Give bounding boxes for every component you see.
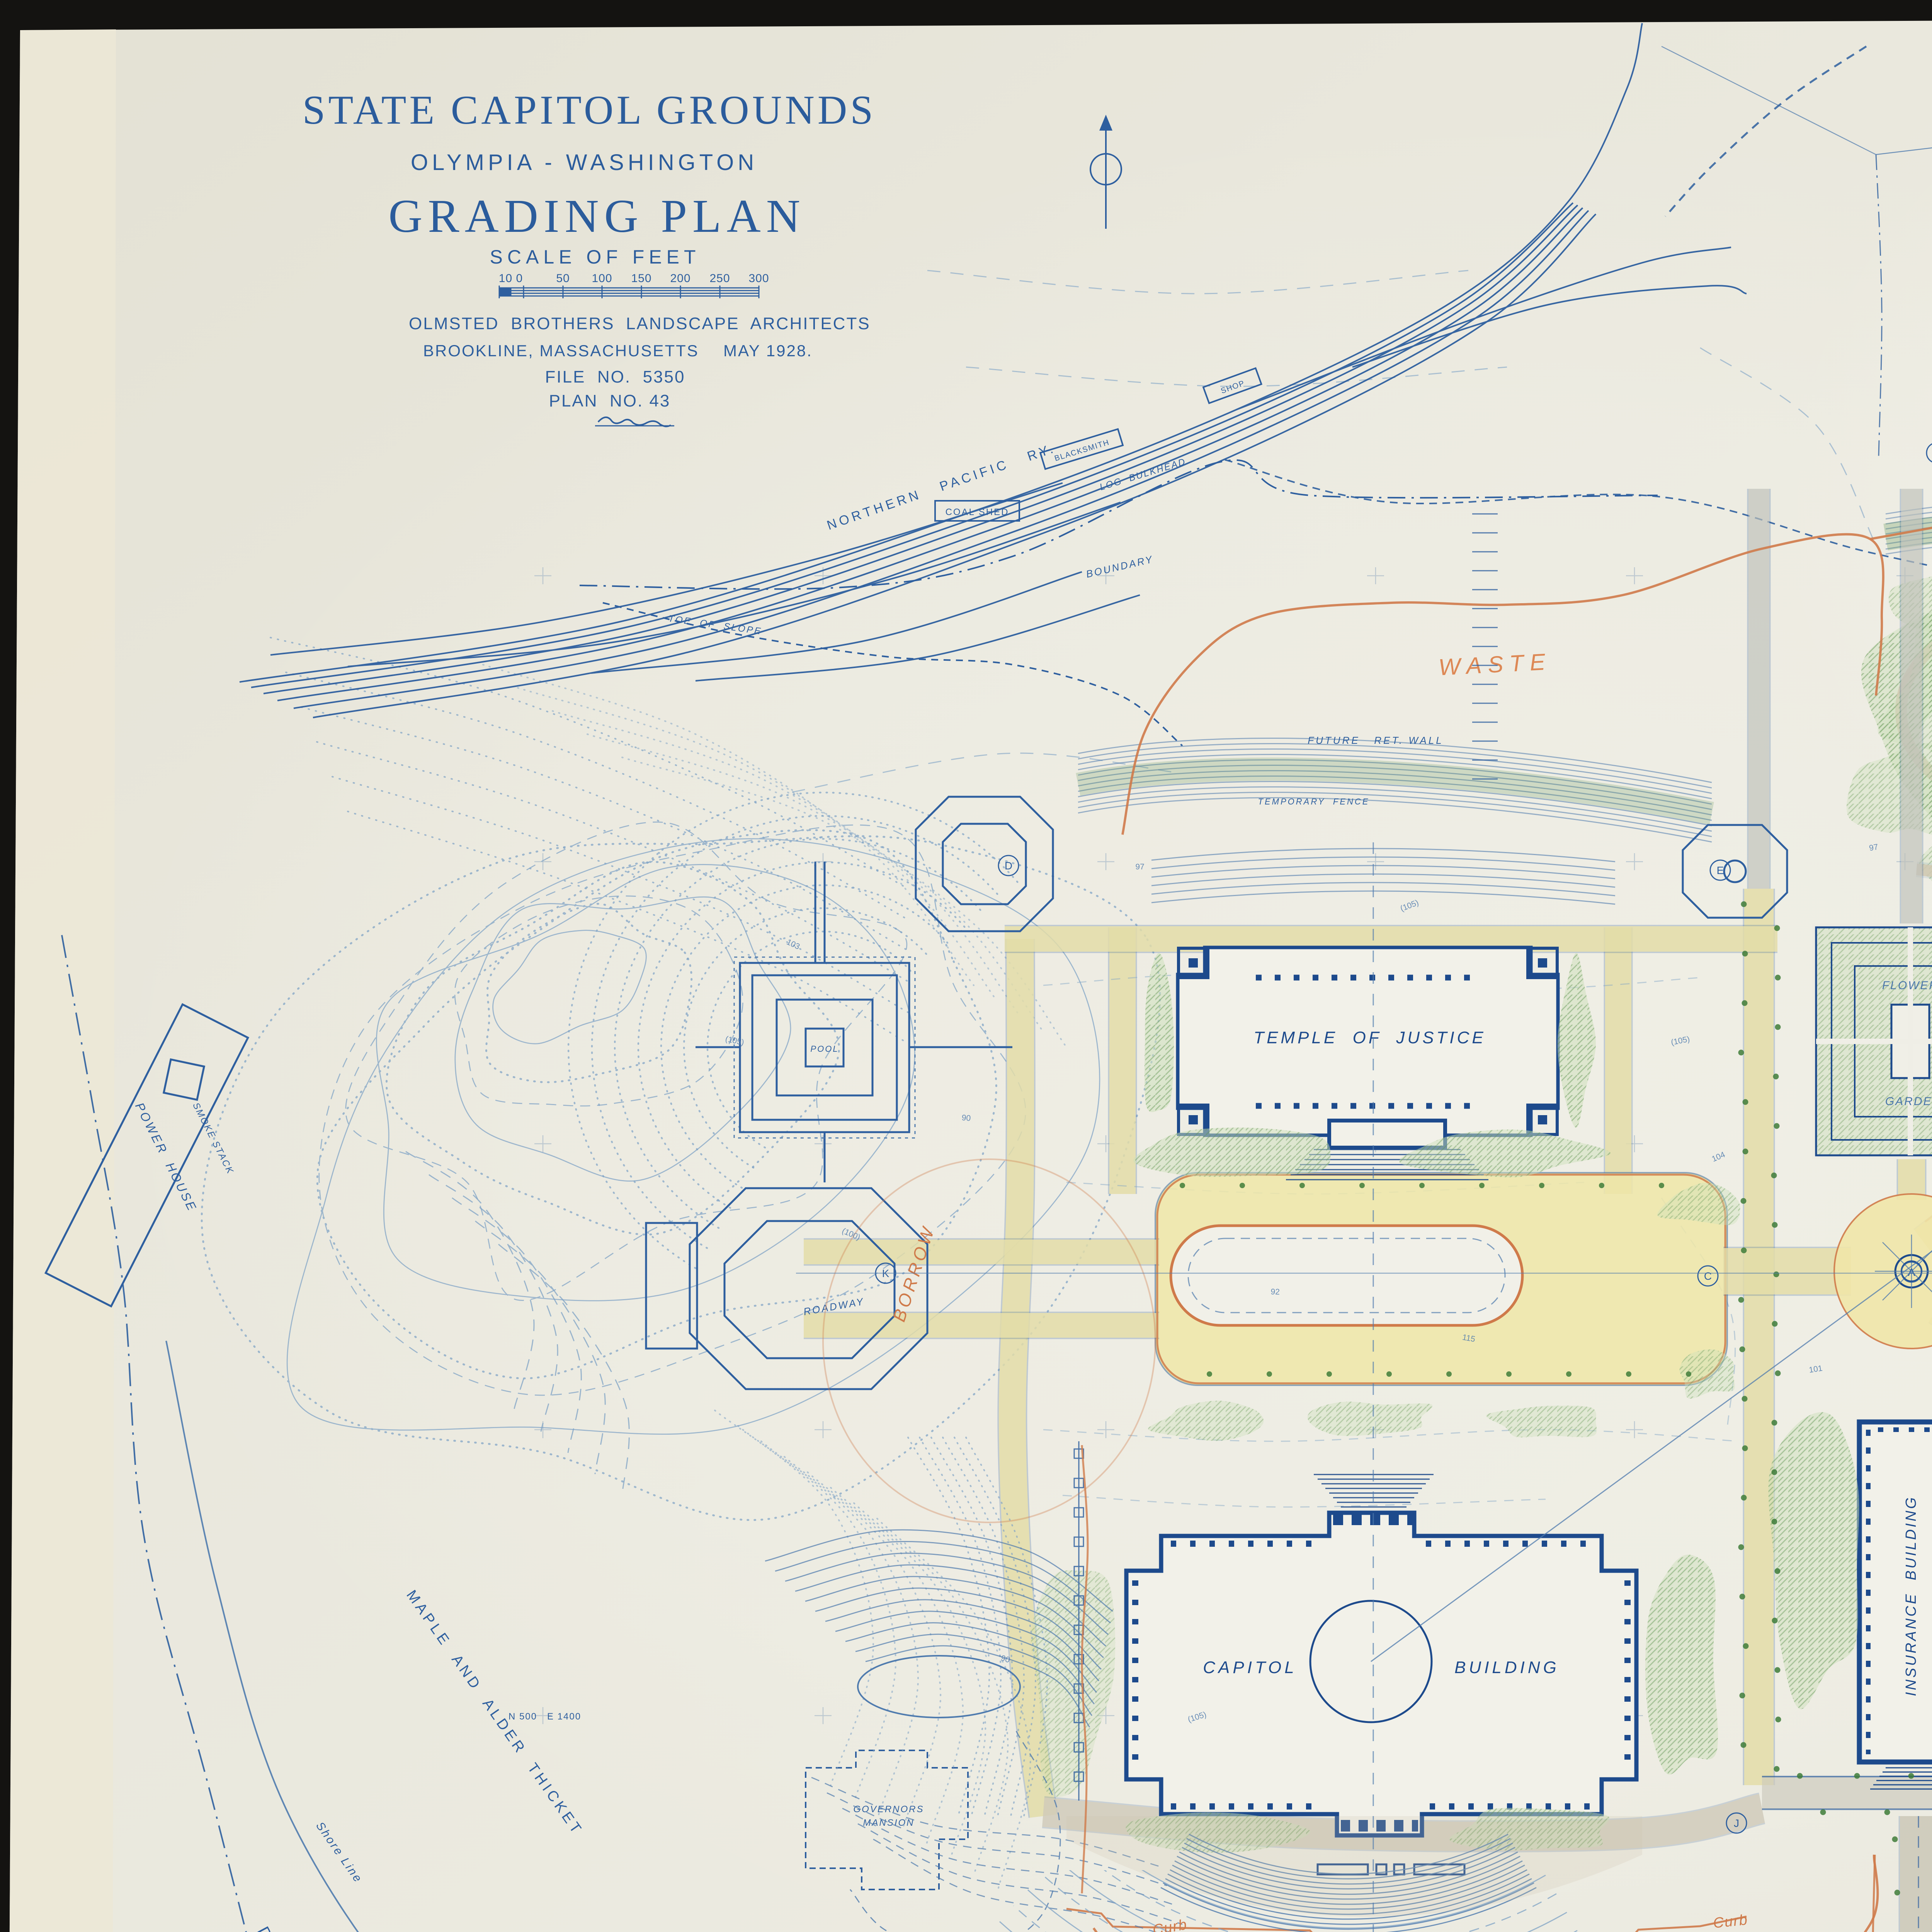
svg-text:SCALE OF FEET: SCALE OF FEET bbox=[490, 246, 701, 268]
svg-text:BUILDING: BUILDING bbox=[1454, 1658, 1560, 1677]
svg-text:97: 97 bbox=[1135, 862, 1144, 871]
svg-text:N 500 E 1400: N 500 E 1400 bbox=[509, 1711, 581, 1722]
svg-text:OLMSTED BROTHERS: OLMSTED BROTHERS bbox=[409, 314, 615, 333]
svg-text:E: E bbox=[1717, 864, 1724, 876]
svg-text:PLAN NO. 43: PLAN NO. 43 bbox=[549, 391, 671, 410]
svg-text:200: 200 bbox=[670, 272, 690, 285]
svg-text:CAPITOL: CAPITOL bbox=[1203, 1658, 1297, 1677]
svg-text:92: 92 bbox=[1270, 1287, 1280, 1297]
svg-text:100: 100 bbox=[592, 272, 612, 285]
svg-text:J: J bbox=[1734, 1817, 1739, 1829]
svg-text:90: 90 bbox=[961, 1113, 971, 1123]
svg-text:GARDEN: GARDEN bbox=[1885, 1095, 1932, 1108]
svg-text:POOL: POOL bbox=[810, 1044, 838, 1054]
svg-text:FUTURE RET. WALL: FUTURE RET. WALL bbox=[1308, 735, 1444, 746]
svg-text:TEMPLE OF JUSTICE: TEMPLE OF JUSTICE bbox=[1253, 1028, 1486, 1047]
svg-text:INSURANCE BUILDING: INSURANCE BUILDING bbox=[1903, 1495, 1919, 1696]
svg-text:50: 50 bbox=[556, 272, 570, 285]
svg-text:300: 300 bbox=[748, 272, 769, 285]
svg-text:FILE NO. 5350: FILE NO. 5350 bbox=[545, 367, 685, 386]
svg-text:LANDSCAPE ARCHITECTS: LANDSCAPE ARCHITECTS bbox=[626, 314, 871, 333]
svg-text:150: 150 bbox=[631, 272, 651, 285]
svg-text:COAL SHED: COAL SHED bbox=[946, 507, 1009, 517]
svg-text:D: D bbox=[1005, 860, 1012, 872]
svg-text:GRADING PLAN: GRADING PLAN bbox=[388, 190, 806, 242]
svg-text:GOVERNORS: GOVERNORS bbox=[853, 1804, 924, 1815]
svg-text:STATE CAPITOL GROUNDS: STATE CAPITOL GROUNDS bbox=[303, 87, 876, 133]
svg-text:OLYMPIA - WASHINGTON: OLYMPIA - WASHINGTON bbox=[411, 150, 758, 175]
svg-text:250: 250 bbox=[709, 272, 730, 285]
svg-text:10 0: 10 0 bbox=[499, 272, 523, 285]
svg-text:BROOKLINE, MASSACHUSETTS: BROOKLINE, MASSACHUSETTS bbox=[423, 342, 699, 360]
svg-text:A: A bbox=[1908, 1266, 1915, 1278]
svg-text:MAY 1928.: MAY 1928. bbox=[723, 342, 813, 360]
svg-text:97: 97 bbox=[1869, 842, 1879, 852]
svg-text:TEMPORARY FENCE: TEMPORARY FENCE bbox=[1258, 797, 1370, 806]
svg-text:C: C bbox=[1704, 1270, 1712, 1282]
svg-text:FLOWER: FLOWER bbox=[1882, 979, 1932, 992]
